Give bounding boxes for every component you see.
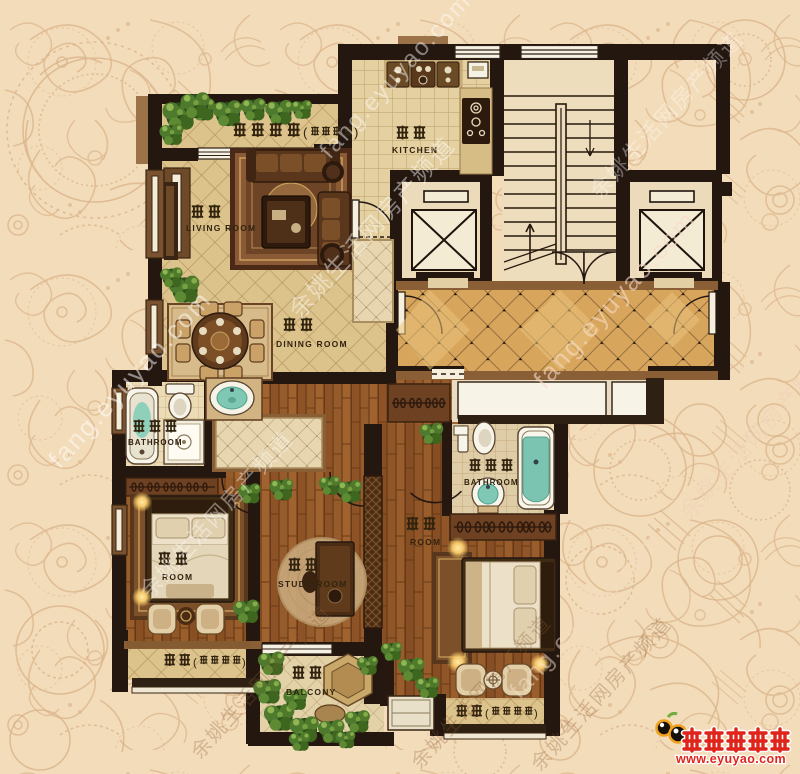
svg-text:(: (	[303, 125, 308, 140]
svg-text:DINING ROOM: DINING ROOM	[276, 339, 348, 349]
svg-text:): )	[242, 657, 246, 669]
svg-text:): )	[534, 708, 538, 720]
svg-text:www.eyuyao.com: www.eyuyao.com	[675, 752, 786, 766]
svg-text:(: (	[485, 708, 489, 720]
svg-text:STUDY ROOM: STUDY ROOM	[278, 579, 347, 589]
svg-text:BALCONY: BALCONY	[286, 687, 336, 697]
svg-text:LIVING ROOM: LIVING ROOM	[186, 223, 256, 233]
svg-text:ROOM: ROOM	[410, 537, 441, 547]
svg-text:(: (	[193, 657, 197, 669]
svg-text:BATHROOM: BATHROOM	[128, 438, 183, 447]
svg-text:BATHROOM: BATHROOM	[464, 478, 519, 487]
